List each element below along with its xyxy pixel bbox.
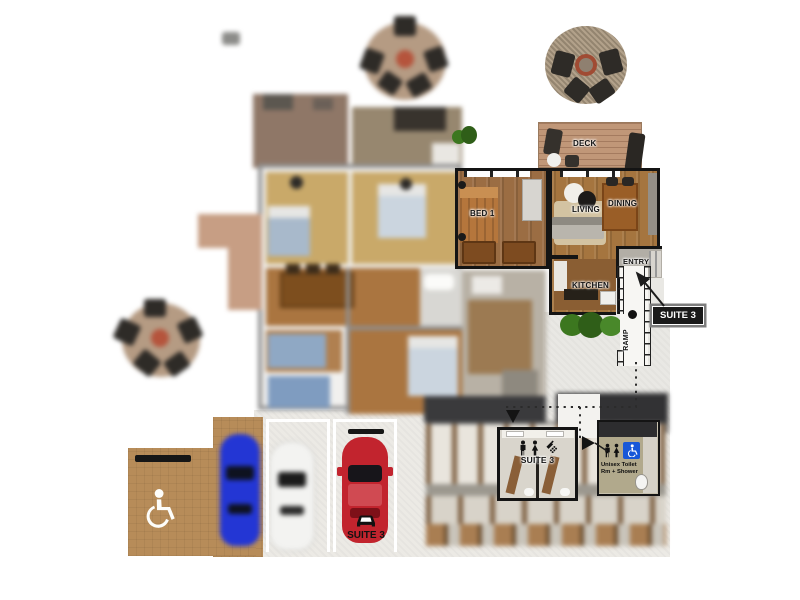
male-icon (603, 443, 612, 458)
dining-chair (622, 177, 634, 186)
patio-chair (598, 48, 624, 76)
dining-label: DINING (608, 199, 637, 208)
toilet (524, 488, 534, 496)
path-node (628, 310, 637, 319)
unisex-toilet-room: Unisex Toilet Rm + Shower (597, 420, 660, 496)
deck-chair (543, 128, 563, 156)
male-icon (518, 440, 528, 456)
ramp-railing-left (617, 266, 624, 314)
floor-plan-canvas: DECK BED 1 (0, 0, 800, 600)
accessible-sign (623, 442, 640, 459)
down-arrow-icon (506, 410, 520, 423)
deck-label: DECK (573, 139, 596, 148)
toilet (560, 488, 570, 496)
suite3-bed1-room: BED 1 (455, 168, 549, 269)
hedge (560, 312, 622, 338)
car-icon (355, 513, 377, 528)
route-overlay (0, 0, 800, 600)
car-roof (348, 484, 382, 506)
fire-pit-center (579, 58, 593, 72)
deck-chair (624, 132, 645, 172)
sink (546, 431, 564, 437)
patio-chair (588, 77, 616, 104)
kitchen-counter (554, 261, 567, 291)
deck: DECK (538, 122, 642, 168)
side-mirror (387, 467, 393, 476)
sofa (552, 217, 604, 239)
suite3-callout: SUITE 3 (652, 306, 704, 325)
roof-band (599, 422, 657, 437)
parking-stall-white (266, 419, 330, 552)
shrub (600, 316, 622, 336)
deck-chair (565, 155, 579, 167)
nightstand (458, 233, 466, 241)
interior-wall (552, 255, 578, 259)
suite3-restroom-label: SUITE 3 (500, 455, 575, 465)
parking-suite3-label: SUITE 3 (331, 530, 401, 541)
armchair (502, 241, 536, 264)
patio-chair (550, 50, 576, 78)
toilet (635, 474, 648, 490)
fire-pit-icon (575, 54, 597, 76)
deck-table (547, 153, 561, 167)
bed1-label: BED 1 (470, 209, 495, 218)
suite3-restroom: SUITE 3 (497, 427, 578, 501)
closet (522, 179, 542, 221)
shrub (461, 126, 477, 144)
armchair (462, 241, 496, 264)
corner-plant (452, 126, 478, 148)
nightstand (458, 181, 466, 189)
patio-chair (563, 76, 591, 104)
wheelchair-icon (625, 444, 638, 457)
kitchen-label: KITCHEN (572, 281, 609, 290)
fridge (600, 291, 616, 305)
female-icon (530, 440, 540, 456)
sink (506, 431, 524, 437)
female-icon (612, 443, 621, 458)
right-arrow-icon (582, 436, 595, 450)
ramp-railing-right (644, 266, 651, 366)
wall-finish (648, 173, 657, 235)
wheel-stop (348, 429, 384, 434)
ramp-label: RAMP (623, 320, 635, 360)
kitchen-island (564, 289, 598, 300)
window-band (464, 171, 530, 177)
unisex-label: Unisex Toilet Rm + Shower (601, 462, 641, 476)
side-mirror (337, 467, 343, 476)
shower-icon (543, 439, 558, 454)
wheel-stop (135, 455, 191, 462)
windshield (348, 465, 382, 482)
dining-chair (606, 177, 618, 186)
focus-area: DECK BED 1 (0, 0, 800, 600)
wheelchair-icon (138, 484, 176, 530)
patio-table-top-right (545, 26, 627, 104)
entry-label: ENTRY (623, 257, 649, 266)
living-label: LIVING (572, 205, 600, 214)
